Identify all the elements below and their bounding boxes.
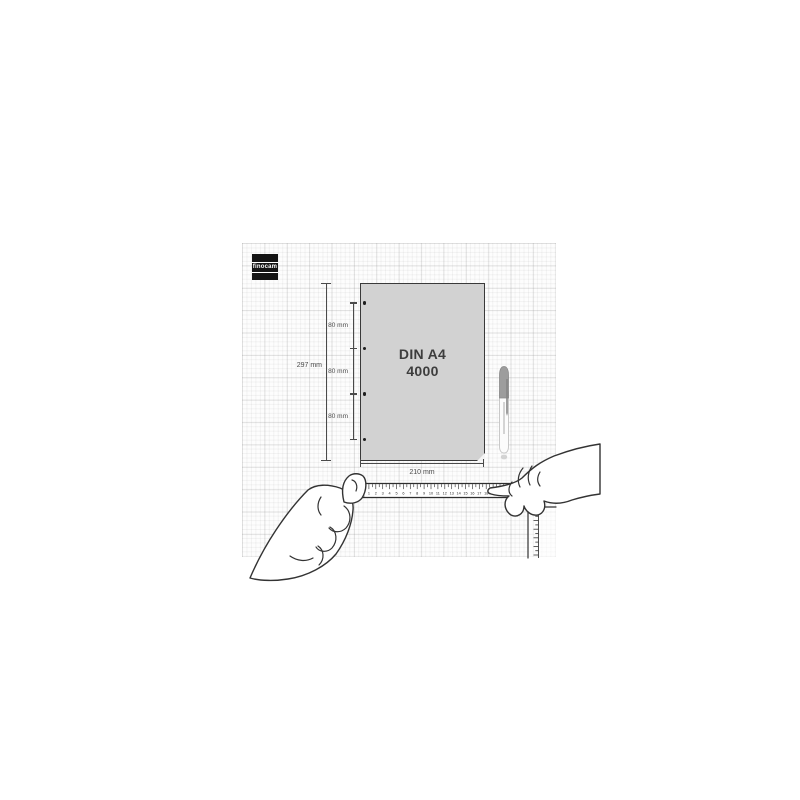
ruler-number: 5	[395, 492, 397, 496]
hole-gap-label: 80 mm	[321, 412, 348, 421]
product-illustration: finocam 297 mm DIN A4 4000 80 mm 80 mm 8…	[0, 0, 800, 800]
dimension-tick	[350, 348, 357, 349]
dimension-tick	[321, 283, 331, 284]
right-hand-body	[488, 444, 600, 516]
ruler-number: 6	[402, 492, 404, 496]
hole-gap-label: 80 mm	[321, 321, 348, 330]
dimension-tick	[350, 302, 357, 303]
hole-dimension-line	[353, 303, 354, 440]
right-hand	[466, 436, 600, 524]
pen-clip	[506, 379, 508, 416]
ruler-number: 8	[416, 492, 418, 496]
left-hand-fist	[250, 485, 353, 580]
height-dimension-label: 297 mm	[286, 361, 322, 370]
punch-hole	[363, 301, 366, 304]
ruler-number: 11	[436, 492, 440, 496]
sheet-title: DIN A4 4000	[360, 346, 485, 380]
ruler-number: 14	[456, 492, 460, 496]
brand-logo-text: finocam	[252, 262, 278, 273]
left-hand	[228, 452, 378, 580]
ruler-number: 10	[429, 492, 433, 496]
ruler-number: 4	[389, 492, 391, 496]
dimension-tick	[350, 393, 357, 394]
sheet-title-line1: DIN A4	[360, 346, 485, 363]
ruler-number: 13	[450, 492, 454, 496]
sheet-title-line2: 4000	[360, 363, 485, 380]
punch-hole	[363, 392, 366, 395]
ruler-number: 7	[409, 492, 411, 496]
left-thumb	[343, 474, 366, 503]
ruler-number: 12	[443, 492, 447, 496]
dimension-tick	[350, 439, 357, 440]
ruler-number: 9	[423, 492, 425, 496]
hole-gap-label: 80 mm	[321, 367, 348, 376]
brand-logo: finocam	[252, 254, 278, 280]
ruler-number: 3	[382, 492, 384, 496]
